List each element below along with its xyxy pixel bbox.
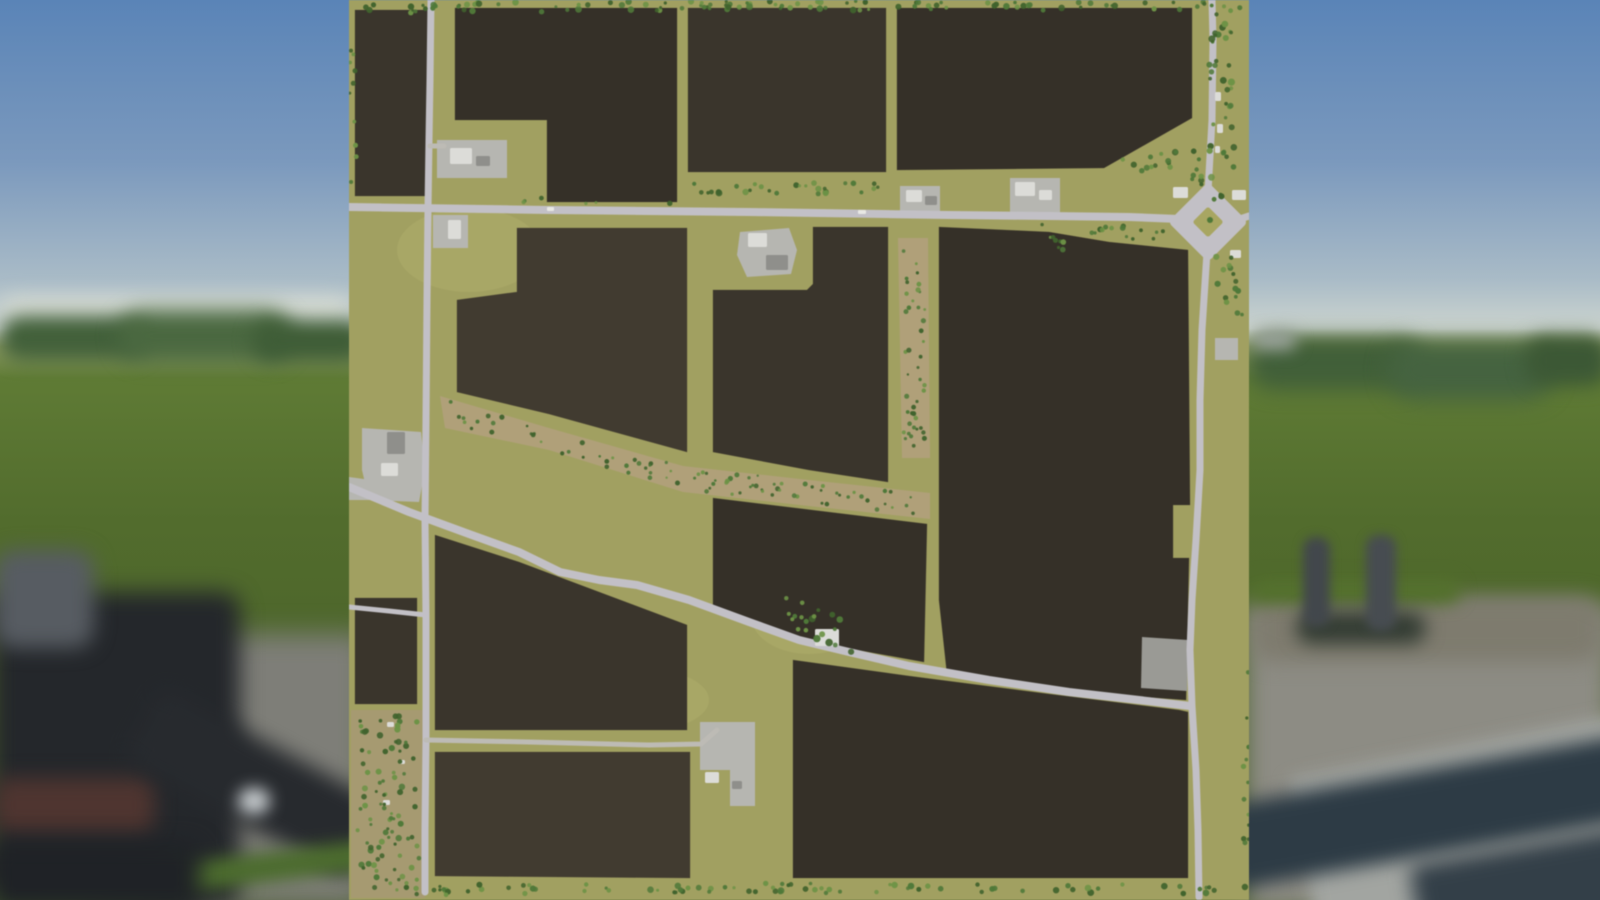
bld-farmstead-a [705,772,719,783]
field-l [435,752,690,878]
grass-tuft-right [1250,578,1460,604]
bld-crossroads [448,220,461,239]
bld-topleft-1 [450,148,472,164]
game-screenshot-viewport [0,0,1600,900]
bld-road-farm1-a [906,190,922,202]
bld-northroad-3 [1215,146,1220,153]
bld-roundabout-ne [1232,190,1246,200]
bld-road-farm1-b [925,196,937,205]
bld-farmstead-b [732,781,742,789]
bld-northroad-2 [1217,124,1223,133]
field-a [355,10,431,196]
distant-building-right [1252,330,1296,350]
vehicle-2 [547,207,554,211]
bld-road-farm2-b [1039,190,1052,200]
bld-center-farm-2 [766,255,788,270]
bld-wood-speck-1 [387,722,394,727]
yard-parking-east [1141,637,1188,691]
bld-left-farm-dark [387,432,405,454]
vehicle-1 [858,210,866,214]
bld-topleft-2 [476,156,490,166]
machine-cab-left [0,550,94,648]
bld-road-farm2-a [1015,182,1035,196]
treeline-right-3 [1525,334,1600,386]
bld-left-farm-white [381,463,398,476]
bld-center-farm-1 [748,233,767,247]
bld-roundabout-nw [1173,187,1188,198]
bld-northroad-1 [1215,92,1221,101]
machine-white-dot [238,788,270,814]
field-g [939,227,1190,700]
yard-pullout-right [1215,338,1238,360]
silo-2 [1366,535,1396,631]
silo-1 [1303,537,1330,627]
farm-map-image [349,0,1249,900]
machine-red-left [0,778,154,832]
field-c [688,8,886,172]
dark-corner-bl [0,842,200,900]
roundabout-island-tree [1207,217,1213,223]
shrub-strip-vertical [898,238,930,458]
